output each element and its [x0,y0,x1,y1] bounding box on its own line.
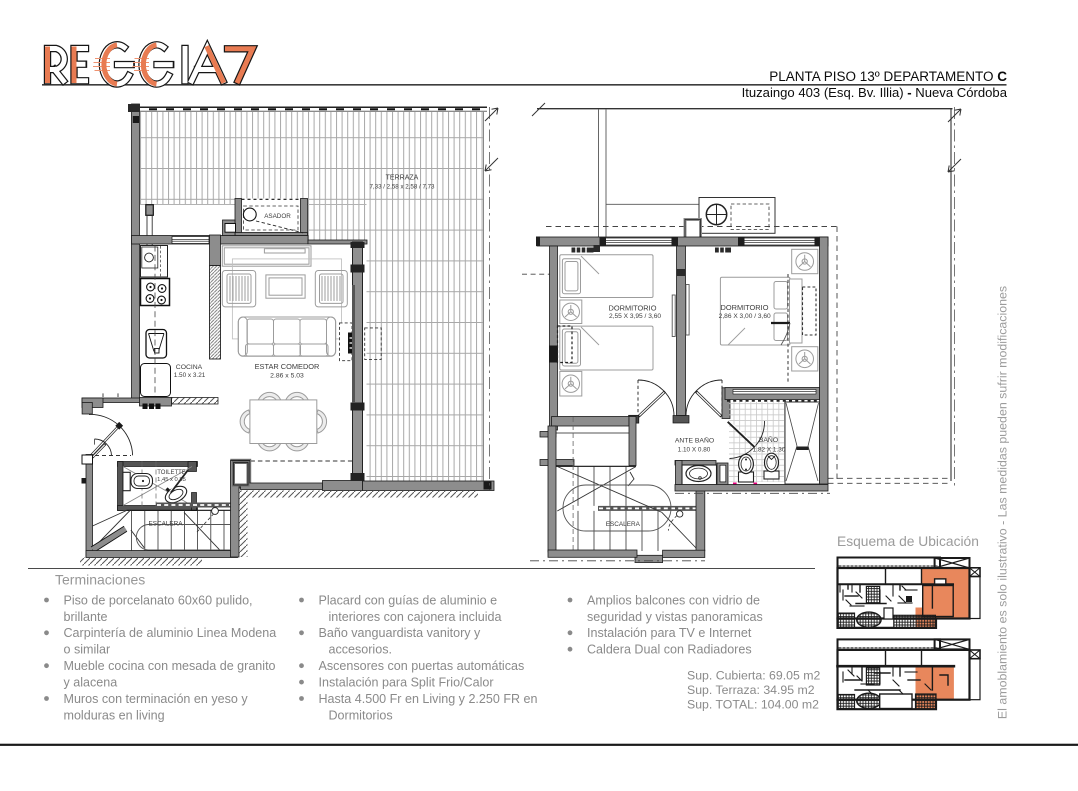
svg-text:ASADOR: ASADOR [264,213,291,220]
svg-text:BAÑO: BAÑO [759,435,778,444]
svg-text:interiores con cajonera inclui: interiores con cajonera incluida [329,610,502,624]
svg-text:7,33 / 2,58 x 2,58 / 7,73: 7,33 / 2,58 x 2,58 / 7,73 [369,184,435,191]
svg-text:brillante: brillante [64,610,108,624]
svg-text:DORMITORIO: DORMITORIO [609,303,657,312]
svg-text:1.50 x 3.21: 1.50 x 3.21 [174,372,206,379]
svg-text:accesorios.: accesorios. [329,643,392,657]
svg-text:Sup. TOTAL: 104.00 m2: Sup. TOTAL: 104.00 m2 [687,698,819,712]
svg-text:seguridad y vistas panoramicas: seguridad y vistas panoramicas [587,610,763,624]
svg-text:Placard con guías de aluminio: Placard con guías de aluminio e [319,593,498,607]
svg-text:Esquema de Ubicación: Esquema de Ubicación [837,534,979,549]
svg-text:DORMITORIO: DORMITORIO [721,303,769,312]
svg-text:Muros con terminación en yeso: Muros con terminación en yeso y [64,692,249,706]
svg-text:2,55 X 3,95 / 3,60: 2,55 X 3,95 / 3,60 [609,313,661,320]
svg-text:Amplios balcones con vidrio de: Amplios balcones con vidrio de [587,593,760,607]
svg-text:ESCALERA: ESCALERA [148,520,183,527]
svg-text:Mueble cocina con mesada de g: Mueble cocina con mesada de granito [64,659,276,673]
svg-text:Ascensores con puertas automát: Ascensores con puertas automáticas [319,659,525,673]
svg-text:Instalación para TV e Internet: Instalación para TV e Internet [587,626,752,640]
svg-text:Caldera Dual con Radiadores: Caldera Dual con Radiadores [587,643,752,657]
svg-text:Carpintería de aluminio Linea: Carpintería de aluminio Linea Modena [64,626,277,640]
svg-text:o similar: o similar [64,643,111,657]
svg-text:TERRAZA: TERRAZA [386,175,419,182]
svg-text:Instalación para Split Frio/Ca: Instalación para Split Frio/Calor [319,676,494,690]
svg-text:Dormitorios: Dormitorios [329,708,393,722]
svg-text:2,86 X 3,00 / 3,60: 2,86 X 3,00 / 3,60 [719,313,771,320]
svg-text:Hasta 4.500 Fr en Living y 2.2: Hasta 4.500 Fr en Living y 2.250 FR en [319,692,538,706]
svg-text:Sup. Terraza: 34.95 m2: Sup. Terraza: 34.95 m2 [687,683,815,697]
svg-text:ANTE BAÑO: ANTE BAÑO [675,435,714,444]
svg-text:Terminaciones: Terminaciones [55,572,145,588]
svg-text:molduras en living: molduras en living [64,708,165,722]
svg-text:COCINA: COCINA [176,364,203,371]
svg-text:PLANTA PISO 13º DEPARTAMENTO C: PLANTA PISO 13º DEPARTAMENTO C [769,69,1007,84]
svg-text:Piso de porcelanato 60x60 pul: Piso de porcelanato 60x60 pulido, [64,593,253,607]
svg-text:ESTAR COMEDOR: ESTAR COMEDOR [255,362,320,371]
svg-text:2.86 x 5.03: 2.86 x 5.03 [270,373,304,380]
svg-text:El amoblamiento es solo ilustr: El amoblamiento es solo ilustrativo - La… [996,286,1010,719]
svg-text:1,45 x 0,85: 1,45 x 0,85 [157,477,186,483]
svg-text:Ituzaingo 403 (Esq. Bv. Illia): Ituzaingo 403 (Esq. Bv. Illia) - Nueva C… [742,85,1008,100]
svg-text:1.10 X 0.80: 1.10 X 0.80 [678,447,711,454]
svg-text:Baño vanguardista vanitory y: Baño vanguardista vanitory y [319,626,482,640]
svg-text:Sup. Cubierta: 69.05 m2: Sup. Cubierta: 69.05 m2 [687,669,820,683]
svg-text:y alacena: y alacena [64,676,118,690]
svg-text:1.82 X 1.30: 1.82 X 1.30 [753,447,786,454]
svg-text:TOILETTE: TOILETTE [157,470,186,476]
svg-text:ESCALERA: ESCALERA [606,521,641,528]
